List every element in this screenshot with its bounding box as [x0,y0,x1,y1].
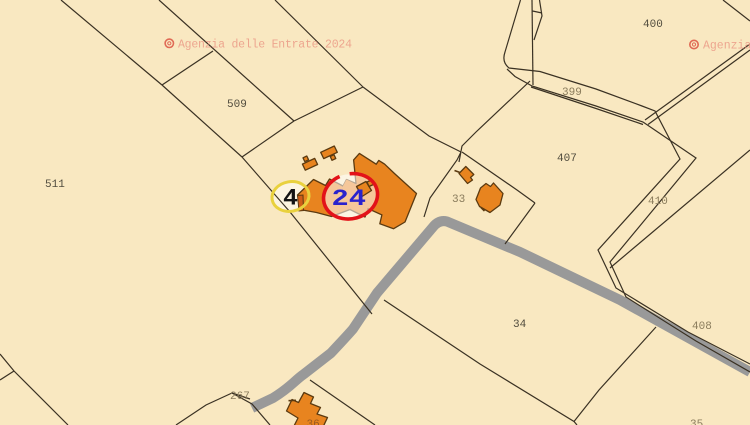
svg-text:24: 24 [332,186,367,212]
svg-text:35: 35 [690,419,703,425]
svg-text:399: 399 [562,87,582,99]
svg-text:4: 4 [283,186,298,212]
svg-text:36: 36 [307,419,320,425]
svg-text:407: 407 [557,153,577,165]
svg-text:408: 408 [692,321,712,333]
svg-text:33: 33 [452,194,465,206]
svg-text:511: 511 [45,179,65,191]
svg-text:34: 34 [513,319,527,331]
svg-text:509: 509 [227,99,247,111]
svg-text:Agenzia delle Entrate 2024: Agenzia delle Entrate 2024 [178,39,352,52]
svg-text:400: 400 [643,19,663,31]
svg-text:267: 267 [230,391,250,403]
svg-text:410: 410 [648,196,668,208]
svg-text:Agenzia d: Agenzia d [703,40,750,53]
